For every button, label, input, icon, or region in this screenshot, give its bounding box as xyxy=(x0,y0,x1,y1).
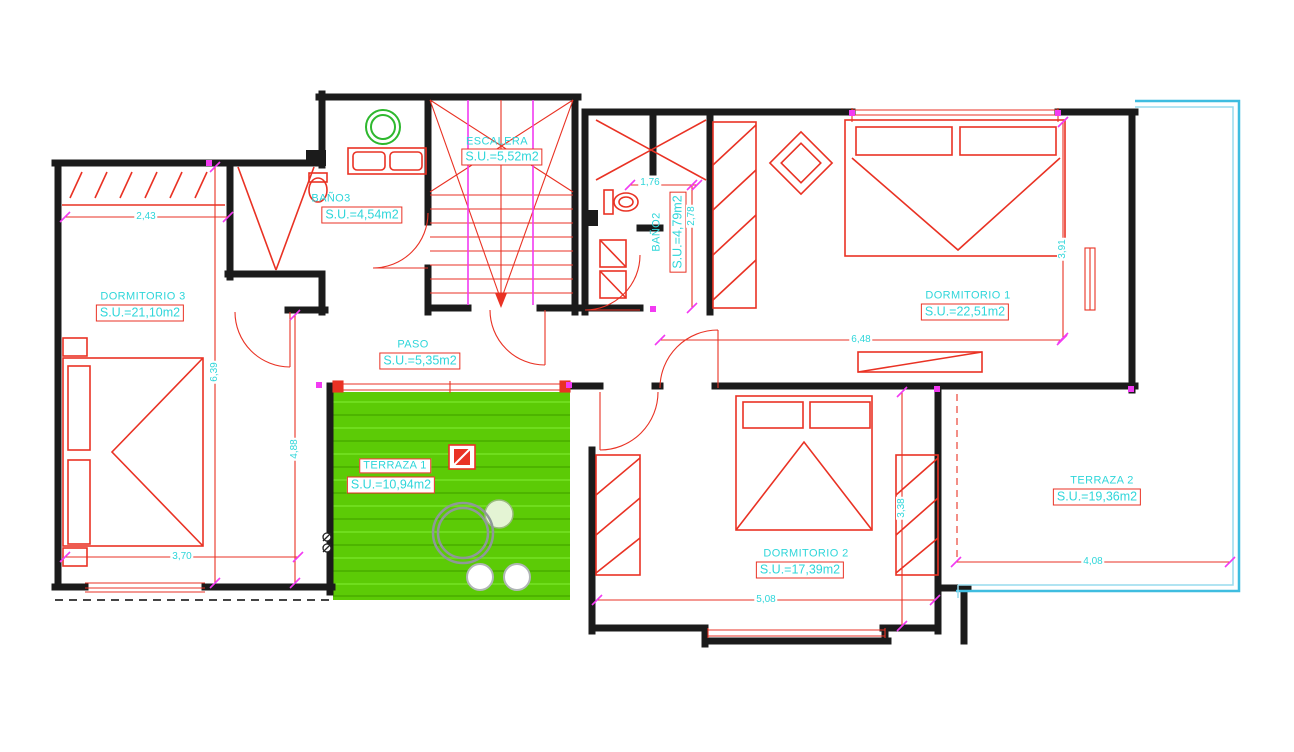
dim-4-88: 4,88 xyxy=(289,437,301,460)
room-name-paso: PASO xyxy=(397,338,428,351)
floor-plan-drawing xyxy=(0,0,1294,752)
dim-2-78: 2,78 xyxy=(686,204,698,227)
staircase xyxy=(430,100,573,308)
dim-3-38: 3,38 xyxy=(896,496,908,519)
room-area-bano-3: S.U.=4,54m2 xyxy=(321,207,402,224)
window-dormitorio-1-top xyxy=(852,108,1058,122)
room-name-terraza-2: TERRAZA 2 xyxy=(1070,474,1134,487)
terrace-2-outline xyxy=(956,101,1239,598)
room-area-dormitorio-2: S.U.=17,39m2 xyxy=(756,562,844,579)
round-table-icon xyxy=(366,110,400,144)
room-area-paso: S.U.=5,35m2 xyxy=(379,353,460,370)
room-name-dormitorio-2: DORMITORIO 2 xyxy=(763,547,848,560)
stair-direction-arrow xyxy=(495,293,507,308)
sliding-door-terrace-1 xyxy=(333,381,570,393)
armchair-icon xyxy=(770,132,832,194)
room-name-dormitorio-3: DORMITORIO 3 xyxy=(100,290,185,303)
room-name-bano-3: BAÑO3 xyxy=(311,192,350,205)
dim-2-43: 2,43 xyxy=(134,211,157,223)
window-dormitorio-3-bottom xyxy=(85,583,205,592)
wardrobe-dormitorio-1 xyxy=(713,122,756,308)
room-name-bano-2: BAÑO2 xyxy=(650,212,663,251)
dim-6-39: 6,39 xyxy=(209,360,221,383)
floor-plan: DORMITORIO 3 S.U.=21,10m2 BAÑO3 S.U.=4,5… xyxy=(0,0,1294,752)
dim-1-76: 1,76 xyxy=(638,177,661,189)
room-area-dormitorio-3: S.U.=21,10m2 xyxy=(96,305,184,322)
drain-symbol-icon xyxy=(449,445,475,469)
bed-dormitorio-2 xyxy=(736,396,872,530)
room-area-terraza-1: S.U.=10,94m2 xyxy=(347,477,435,494)
dim-5-08: 5,08 xyxy=(754,594,777,606)
bench-icon xyxy=(858,352,982,372)
terrace-1-floor xyxy=(333,392,570,600)
room-area-terraza-2: S.U.=19,36m2 xyxy=(1053,489,1141,506)
bed-dormitorio-1 xyxy=(845,120,1065,256)
room-area-bano-2: S.U.=4,79m2 xyxy=(670,191,687,272)
dim-4-08: 4,08 xyxy=(1081,556,1104,568)
washer-icon xyxy=(306,150,326,166)
window-dormitorio-1-right xyxy=(1085,248,1095,310)
room-name-terraza-1: TERRAZA 1 xyxy=(359,458,431,473)
dimension-lines xyxy=(65,122,1230,626)
window-dormitorio-2-bottom xyxy=(708,628,885,638)
closet-dormitorio-2-left xyxy=(596,455,640,575)
dim-6-48: 6,48 xyxy=(849,334,872,346)
dim-3-70: 3,70 xyxy=(170,551,193,563)
closet-dormitorio-3 xyxy=(62,172,225,205)
dim-3-91: 3,91 xyxy=(1057,237,1069,260)
room-name-dormitorio-1: DORMITORIO 1 xyxy=(925,289,1010,302)
boiler-icon xyxy=(584,210,598,226)
room-name-escalera: ESCALERA xyxy=(466,135,528,148)
dimension-ticks xyxy=(60,117,1235,631)
room-area-escalera: S.U.=5,52m2 xyxy=(461,149,542,166)
room-area-dormitorio-1: S.U.=22,51m2 xyxy=(921,304,1009,321)
bed-dormitorio-3 xyxy=(63,338,203,566)
